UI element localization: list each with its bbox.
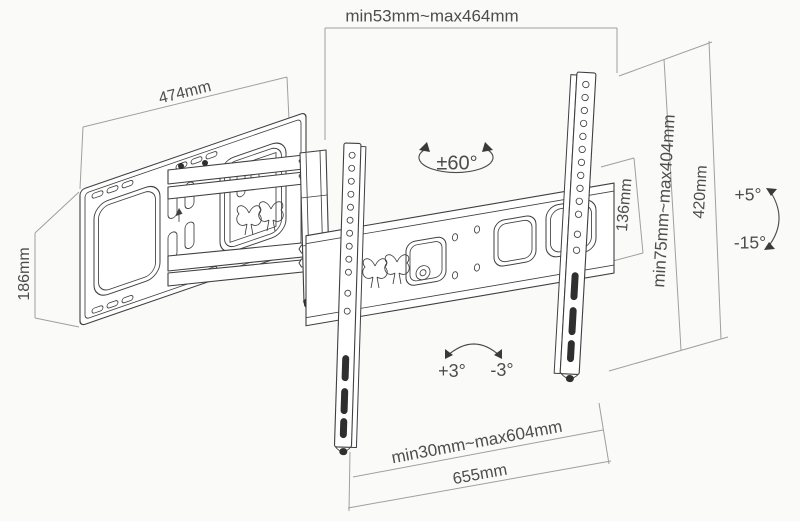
bolt-icon [178, 163, 184, 169]
mount-dimension-diagram: min53mm~max464mm 474mm 186mm ±60° 136mm … [0, 0, 800, 521]
arrowhead-icon [766, 188, 777, 196]
bolt-icon [202, 160, 208, 166]
arrowhead-icon [419, 142, 430, 152]
angle-label-roll-left: +3° [438, 361, 466, 381]
dim-label-hole-spacing: 136mm [614, 178, 636, 233]
arrowhead-icon [445, 349, 453, 359]
arrowhead-icon [482, 142, 493, 152]
angle-label-tilt-down: -15° [734, 233, 766, 253]
foot-pad [566, 375, 574, 382]
tilt-arc [764, 188, 779, 250]
angle-label-swivel: ±60° [436, 152, 477, 174]
left-rail [334, 143, 366, 456]
dim-label-bracket-height: 420mm [691, 165, 711, 219]
dim-label-wall-plate-height: 186mm [16, 247, 33, 300]
angle-label-tilt-up: +5° [735, 185, 762, 205]
dim-label-wall-plate-width: 474mm [157, 78, 213, 107]
foot-pad [339, 448, 347, 455]
diagram-svg: min53mm~max464mm 474mm 186mm ±60° 136mm … [0, 0, 800, 521]
wall-plate [80, 112, 306, 326]
dim-label-top-width-range: min53mm~max464mm [345, 6, 518, 25]
dim-label-vertical-range: min75mm~max404mm [649, 114, 679, 288]
arrowhead-icon [494, 349, 502, 359]
angle-label-roll-right: -3° [490, 360, 513, 380]
roll-arc [445, 344, 502, 359]
